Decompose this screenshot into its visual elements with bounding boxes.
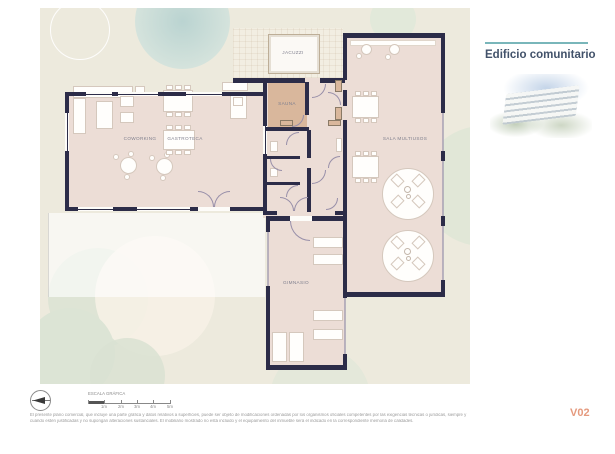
scale-tick-label: 1m (101, 405, 107, 409)
wall (266, 216, 270, 232)
sofa (73, 98, 86, 134)
chair (175, 85, 182, 90)
site-plan-canvas: JACUZZI COWORKING GASTROTECA SAUNA SALA … (40, 8, 470, 384)
wall (263, 92, 267, 126)
scale-tick (170, 400, 171, 404)
scale-tick-label: 2m (118, 405, 124, 409)
wall (343, 33, 445, 38)
gym-equipment (313, 310, 343, 321)
door-leaf (280, 120, 293, 126)
chair (371, 178, 377, 183)
chair (184, 150, 191, 155)
table (352, 96, 379, 118)
wall (65, 92, 69, 211)
window (344, 298, 346, 354)
table-decor (406, 256, 411, 261)
wall (343, 90, 347, 106)
chair (149, 155, 155, 161)
chair (184, 85, 191, 90)
window (267, 232, 269, 286)
gym-equipment (313, 329, 343, 340)
gym-mat (272, 332, 287, 362)
gym-equipment (313, 237, 343, 248)
version-code: V02 (570, 407, 590, 419)
chair (128, 151, 134, 157)
scale-label: ESCALA GRÁFICA (88, 392, 125, 396)
kitchen-appliance (233, 97, 243, 106)
window (78, 207, 113, 211)
door-leaf (335, 80, 342, 92)
wall (113, 207, 137, 211)
room-label-gimnasio: GIMNASIO (283, 281, 309, 286)
table-decor (406, 194, 411, 199)
chair (363, 91, 369, 96)
chair (166, 150, 173, 155)
door-opening (198, 207, 230, 211)
chair (355, 178, 361, 183)
wall (266, 127, 309, 131)
room-label-jacuzzi: JACUZZI (282, 51, 303, 56)
wall (263, 78, 267, 94)
chair (113, 154, 119, 160)
chair (175, 125, 182, 130)
room-label-gastroteca: GASTROTECA (167, 137, 202, 142)
gym-equipment (313, 254, 343, 265)
chair (160, 175, 166, 181)
toilet (270, 141, 278, 152)
decor-circle (135, 8, 230, 69)
wall (307, 130, 311, 158)
round-table (120, 157, 137, 174)
stool (361, 44, 372, 55)
chair (371, 91, 377, 96)
window (118, 92, 158, 96)
window (186, 92, 222, 96)
round-table (156, 158, 173, 175)
wall (263, 211, 277, 215)
sink (336, 138, 342, 152)
table-decor (404, 248, 411, 255)
chair (355, 91, 361, 96)
building-facade-illustration (502, 85, 579, 125)
wall (222, 92, 265, 96)
table (352, 156, 379, 178)
chair (166, 85, 173, 90)
chair (184, 125, 191, 130)
wall (441, 151, 445, 161)
wall (158, 92, 186, 96)
wall (190, 207, 198, 211)
building-watercolor-image (490, 74, 592, 138)
scale-tick (88, 400, 89, 404)
stool (389, 44, 400, 55)
wall (230, 207, 265, 211)
window (137, 207, 190, 211)
chair (371, 118, 377, 123)
stool (356, 53, 362, 59)
page: JACUZZI COWORKING GASTROTECA SAUNA SALA … (0, 0, 615, 454)
gym-mat (289, 332, 304, 362)
door-leaf (328, 120, 341, 126)
chair (371, 151, 377, 156)
chair (124, 174, 130, 180)
chair (363, 118, 369, 123)
armchair (120, 96, 134, 107)
chair (175, 112, 182, 117)
scale-tick-label: 4m (150, 405, 156, 409)
disclaimer-line: cuando estén justificadas y no supongan … (30, 419, 414, 423)
window (442, 113, 444, 280)
chair (363, 151, 369, 156)
wall (343, 35, 347, 80)
scale-tick (153, 400, 154, 404)
armchair (120, 112, 134, 123)
table-decor (404, 186, 411, 193)
wall (266, 365, 347, 370)
scale-tick (104, 400, 105, 404)
wall (343, 120, 347, 298)
window (65, 113, 69, 151)
wall (266, 286, 270, 370)
wall (343, 292, 445, 297)
wall (312, 216, 345, 221)
scale-tick-label: 5m (167, 405, 173, 409)
chair (166, 125, 173, 130)
page-title: Edificio comunitario (485, 49, 596, 61)
chair (175, 150, 182, 155)
coffee-table (96, 101, 113, 129)
kitchen-counter (222, 82, 248, 91)
scale-tick (137, 400, 138, 404)
room-label-coworking: COWORKING (124, 137, 157, 142)
decor-circle-outline (50, 8, 110, 60)
chair (184, 112, 191, 117)
disclaimer-line: El presente plano comercial, que incluye… (30, 413, 466, 417)
chair (363, 178, 369, 183)
wall (233, 78, 305, 83)
window (86, 92, 112, 96)
accent-divider (485, 42, 588, 44)
chair (355, 118, 361, 123)
door-leaf (335, 107, 342, 120)
wall (305, 82, 309, 115)
wall (441, 216, 445, 226)
room-label-sauna: SAUNA (278, 102, 296, 107)
terrace (48, 213, 265, 297)
chair (355, 151, 361, 156)
chair (166, 112, 173, 117)
scale-tick-label: 3m (134, 405, 140, 409)
scale-tick (121, 400, 122, 404)
stool (385, 54, 391, 60)
scale-bar-segment (88, 401, 104, 404)
wall (441, 33, 445, 113)
room-label-sala-multiusos: SALA MULTIUSOS (383, 137, 427, 142)
